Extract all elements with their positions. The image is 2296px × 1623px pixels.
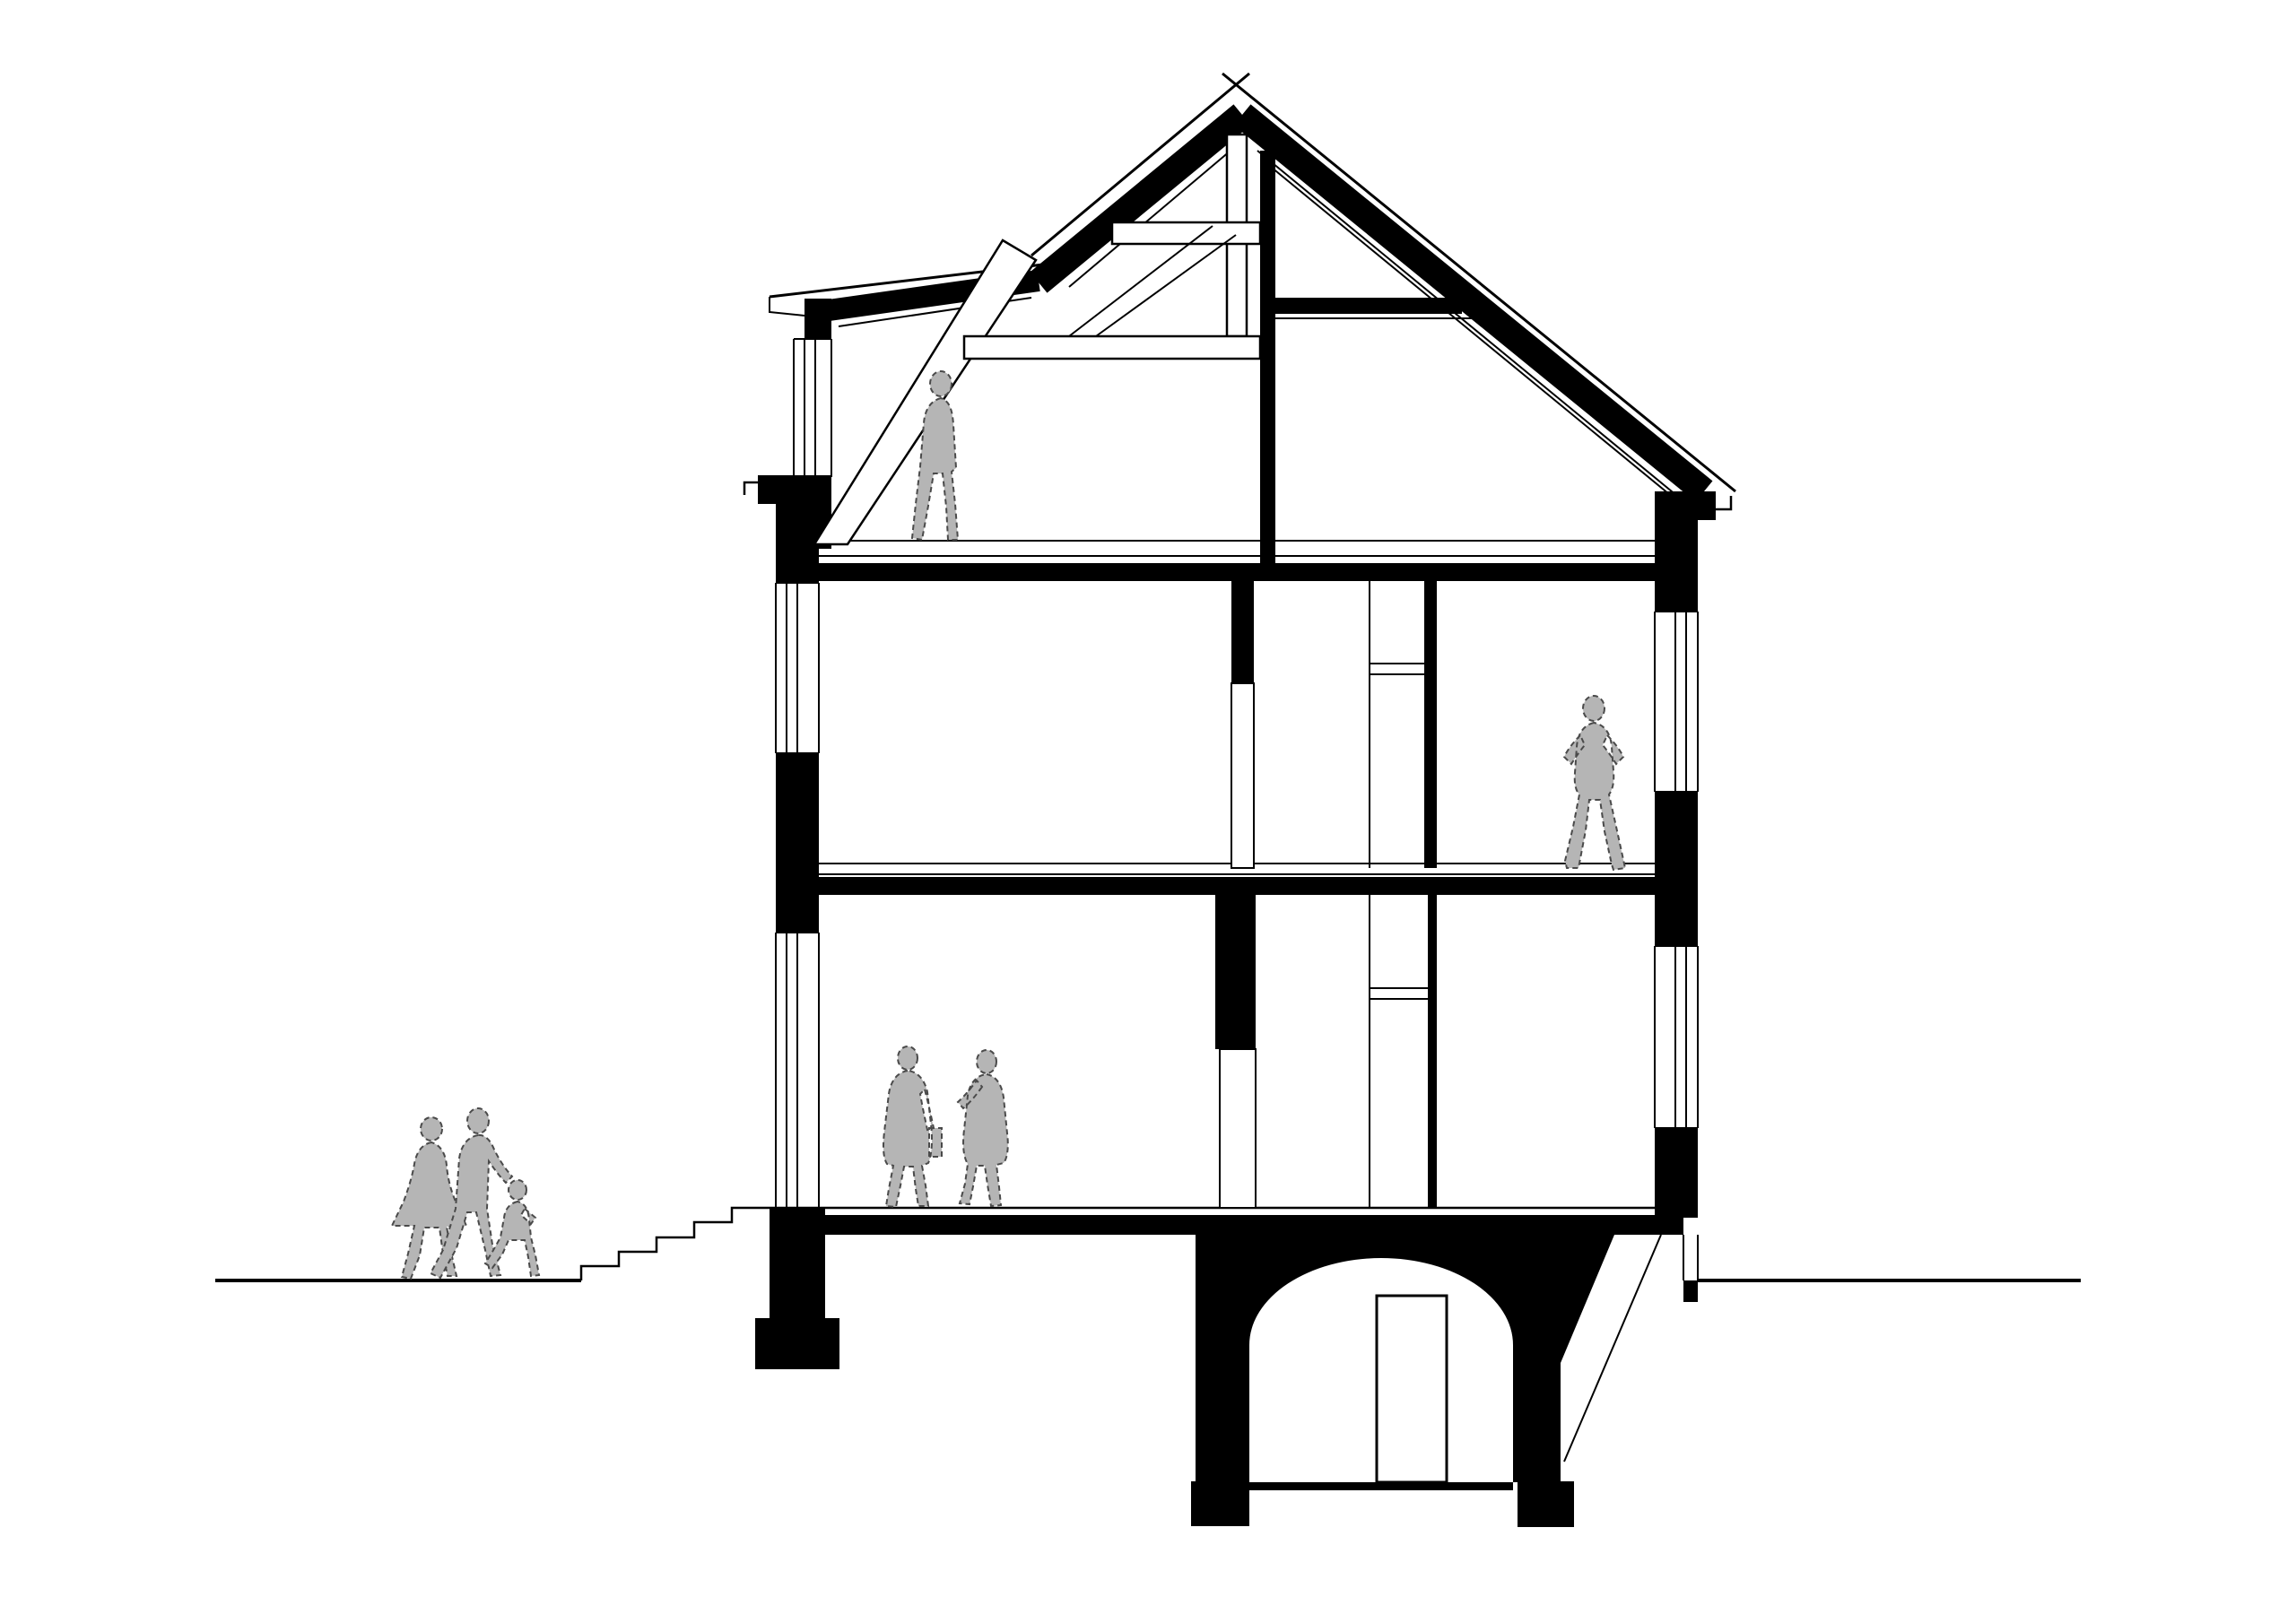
right-wall-upper-black xyxy=(1655,520,1698,612)
section-canvas xyxy=(0,0,2296,1623)
figure-outside-woman-head xyxy=(421,1117,442,1141)
core1-left-door xyxy=(1220,1049,1256,1208)
figure-groundfloor-man-left-body xyxy=(883,1071,942,1207)
attic-knee-window xyxy=(776,339,831,477)
right-window-upper xyxy=(1655,612,1698,792)
left-foundation xyxy=(770,1208,825,1318)
roof-inner-line-right-1 xyxy=(1257,151,1677,496)
roof-inner-line-left xyxy=(1069,151,1231,287)
section-drawing-page xyxy=(0,0,2296,1623)
shed-end-post xyxy=(804,299,831,339)
core2-left-wall xyxy=(1231,581,1254,683)
left-wall xyxy=(744,475,839,1369)
figure-attic-person-head xyxy=(930,371,952,396)
left-gutter-mark xyxy=(744,482,758,495)
attic-floor-slab xyxy=(776,563,1698,581)
core1-door-rails xyxy=(1370,988,1428,999)
roof-band-left xyxy=(1039,115,1242,282)
second-floor-slab xyxy=(776,877,1698,895)
shed-roof-tip-lines xyxy=(770,297,804,316)
left-footing xyxy=(755,1318,839,1369)
building-section-svg xyxy=(0,0,2296,1623)
figure-secondfloor-woman-head xyxy=(1583,696,1605,721)
figure-outside-child-head xyxy=(509,1180,526,1200)
core1-left-wall xyxy=(1215,895,1256,1049)
figure-secondfloor-woman-body xyxy=(1564,723,1625,870)
attic-collar-lower xyxy=(964,336,1260,359)
core2-door-rails xyxy=(1370,664,1424,674)
attic-brace-line-2 xyxy=(1096,235,1236,336)
figure-groundfloor-man-right-body xyxy=(958,1074,1008,1206)
scale-figures xyxy=(392,371,1625,1279)
figure-groundfloor-man-left-head xyxy=(898,1046,918,1070)
roof-outer-line-right xyxy=(1222,74,1735,491)
figure-groundfloor-man-right-head xyxy=(977,1050,996,1073)
left-entry-door xyxy=(776,933,819,1208)
ground-floor-slab xyxy=(776,1215,1683,1235)
right-wall-grade-block xyxy=(1683,1280,1698,1302)
figure-outside-child-body xyxy=(485,1202,539,1276)
core1-right-wall xyxy=(1428,895,1437,1208)
left-wall-upper-black xyxy=(776,549,819,583)
right-window-lower xyxy=(1655,946,1698,1128)
left-window-upper xyxy=(776,583,819,753)
right-eave-block xyxy=(1655,491,1716,520)
figure-outside-man-head xyxy=(467,1108,489,1133)
right-wall xyxy=(1655,491,1731,1302)
core2-left-door xyxy=(1231,683,1254,868)
core2-right-wall xyxy=(1424,581,1437,868)
basement xyxy=(1191,1235,1661,1527)
right-wall-lower-black xyxy=(1655,1128,1698,1218)
right-wall-below-grade xyxy=(1683,1235,1698,1280)
basement-footing-left xyxy=(1191,1481,1249,1526)
roof-inner-line-right-2 xyxy=(1266,163,1684,507)
attic-center-wall xyxy=(1260,151,1275,563)
basement-door xyxy=(1377,1296,1447,1482)
right-gutter-mark xyxy=(1716,496,1731,509)
attic-collar-upper xyxy=(1112,222,1260,244)
left-wall-mid-black xyxy=(776,753,819,933)
entry-stairs xyxy=(581,1208,776,1280)
attic-right-ceiling-band xyxy=(1275,298,1462,314)
right-wall-mid-black xyxy=(1655,792,1698,946)
basement-footing-right xyxy=(1518,1481,1574,1527)
